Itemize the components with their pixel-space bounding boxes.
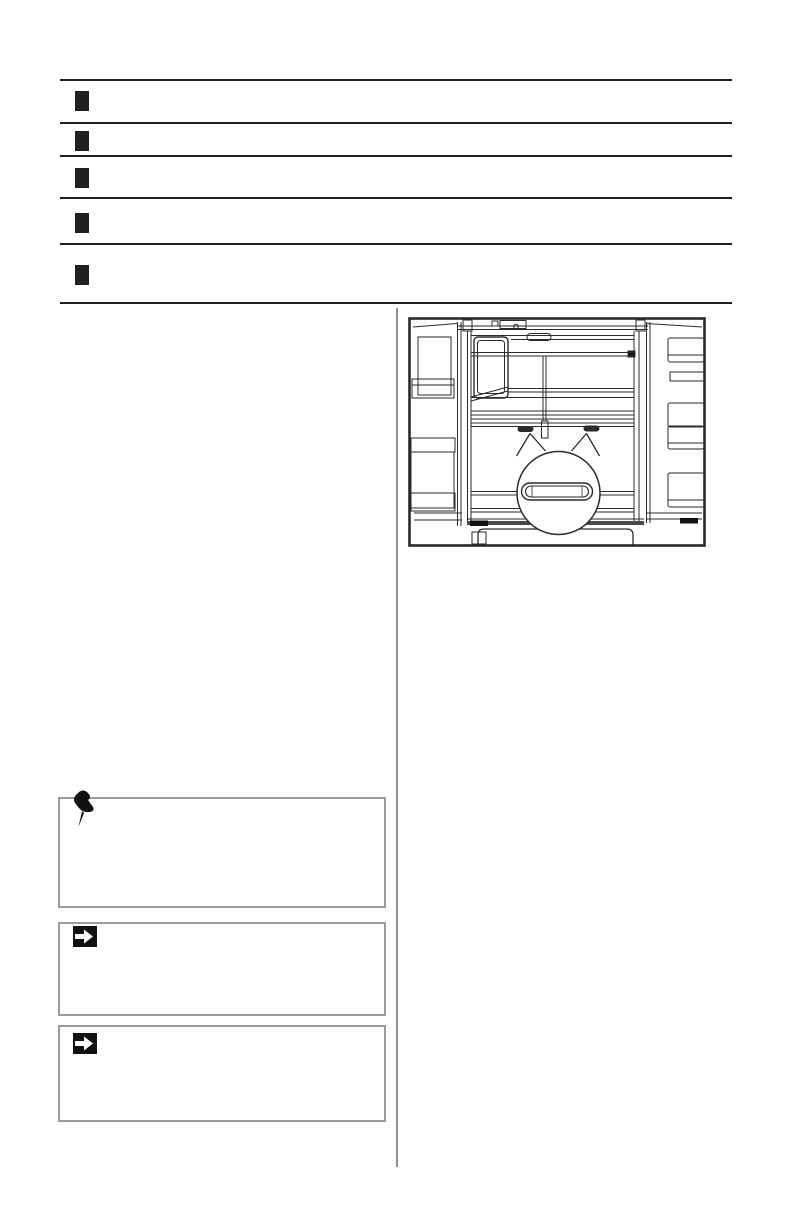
arrow-right-icon (73, 926, 97, 947)
list-marker-square-1 (75, 91, 89, 111)
list-rule-4 (60, 197, 732, 199)
list-rule-3 (60, 155, 732, 157)
refrigerator-figure (408, 317, 706, 547)
refrigerator-line-art (408, 317, 706, 547)
list-rule-1 (60, 79, 732, 81)
document-page (0, 0, 794, 1225)
column-divider (396, 308, 398, 1167)
list-rule-2 (60, 122, 732, 125)
list-marker-square-5 (75, 265, 89, 285)
arrow-right-icon (73, 1033, 97, 1054)
list-marker-square-3 (75, 168, 89, 188)
note-box-arrow-1 (58, 922, 386, 1016)
magnifier-callout-circle (517, 452, 600, 535)
list-rule-5 (60, 243, 732, 245)
pushpin-icon (71, 789, 99, 831)
list-marker-square-2 (75, 131, 89, 151)
list-rule-6 (60, 302, 732, 304)
list-marker-square-4 (75, 213, 89, 233)
note-box-pushpin (58, 797, 386, 908)
note-box-arrow-2 (58, 1025, 386, 1122)
